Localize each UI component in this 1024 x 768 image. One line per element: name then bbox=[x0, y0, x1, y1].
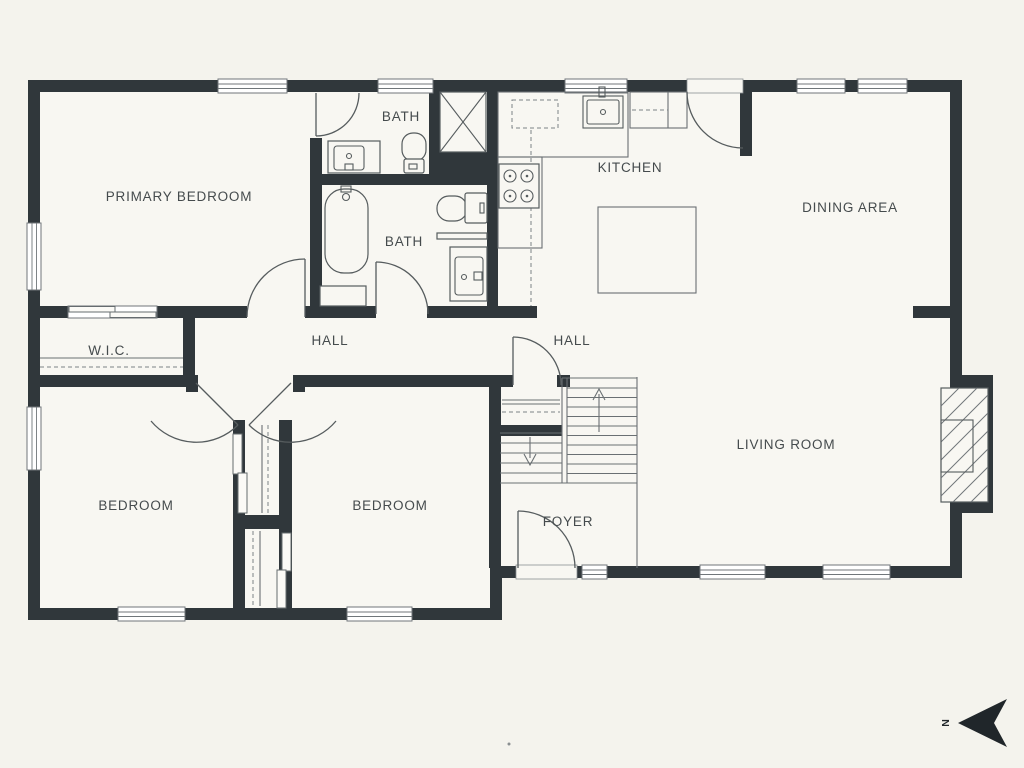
window bbox=[27, 407, 41, 470]
room-label-bath-lower: BATH bbox=[385, 234, 423, 249]
window bbox=[218, 79, 287, 93]
room-label-wic: W.I.C. bbox=[88, 343, 130, 358]
kitchen-dining-stub-wall bbox=[740, 92, 752, 156]
room-label-bedroom-left: BEDROOM bbox=[98, 498, 173, 513]
room-label-foyer: FOYER bbox=[543, 514, 594, 529]
dining-living-stub-wall bbox=[913, 306, 952, 318]
room-label-hall-main: HALL bbox=[554, 333, 591, 348]
stove-cooktop bbox=[499, 164, 539, 208]
window bbox=[118, 607, 185, 621]
window bbox=[797, 79, 845, 93]
room-label-primary-bedroom: PRIMARY BEDROOM bbox=[106, 189, 253, 204]
towel-bar bbox=[437, 233, 487, 239]
window bbox=[823, 565, 890, 579]
floor-plan-canvas: PRIMARY BEDROOM BATH BATH KITCHEN DINING… bbox=[0, 0, 1024, 768]
floor-plan-page: PRIMARY BEDROOM BATH BATH KITCHEN DINING… bbox=[0, 0, 1024, 768]
vanity-sink bbox=[328, 141, 380, 173]
bathtub bbox=[325, 186, 368, 273]
closet-column-divider bbox=[233, 515, 292, 529]
page-mark-dot bbox=[508, 743, 511, 746]
shower-valve-icon bbox=[451, 145, 469, 149]
window bbox=[378, 79, 433, 93]
window bbox=[565, 79, 627, 93]
shower bbox=[440, 92, 486, 152]
linen-niche bbox=[320, 286, 366, 306]
window bbox=[347, 607, 412, 621]
kitchen-rear-door-opening bbox=[687, 79, 743, 93]
wic-sliding-door bbox=[68, 306, 157, 318]
vanity-sink bbox=[450, 247, 487, 301]
window bbox=[700, 565, 765, 579]
north-arrow-icon bbox=[958, 699, 1007, 747]
window bbox=[582, 565, 607, 579]
window bbox=[27, 223, 41, 290]
room-label-hall-bedrooms: HALL bbox=[312, 333, 349, 348]
fireplace bbox=[941, 388, 988, 502]
window bbox=[858, 79, 907, 93]
compass-north-letter: N bbox=[940, 719, 952, 727]
front-door-opening bbox=[516, 565, 577, 579]
room-label-living-room: LIVING ROOM bbox=[737, 437, 836, 452]
toilet bbox=[402, 133, 426, 173]
compass-north-arrow: N bbox=[940, 699, 1007, 747]
toilet bbox=[437, 193, 487, 223]
room-label-bath-upper: BATH bbox=[382, 109, 420, 124]
room-label-kitchen: KITCHEN bbox=[598, 160, 663, 175]
room-label-dining-area: DINING AREA bbox=[802, 200, 898, 215]
room-label-bedroom-middle: BEDROOM bbox=[352, 498, 427, 513]
